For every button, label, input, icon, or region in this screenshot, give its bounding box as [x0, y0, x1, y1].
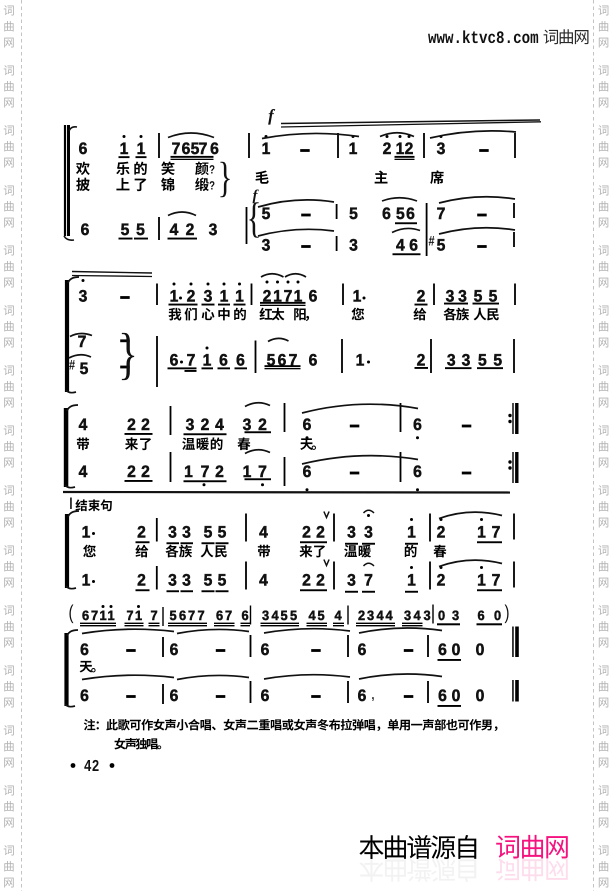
svg-text:3: 3	[347, 524, 356, 542]
svg-text:2: 2	[417, 288, 426, 306]
svg-text:3: 3	[364, 524, 373, 542]
svg-text:1: 1	[356, 352, 365, 370]
svg-text:1: 1	[349, 140, 358, 158]
svg-text:3: 3	[447, 352, 456, 370]
svg-text:0: 0	[476, 687, 485, 705]
svg-text:7: 7	[197, 608, 204, 623]
svg-text:3: 3	[182, 572, 191, 590]
svg-text:1: 1	[107, 608, 115, 623]
svg-text:6: 6	[82, 608, 90, 623]
svg-text:5: 5	[204, 572, 213, 590]
svg-text:6: 6	[303, 416, 312, 434]
svg-text:2: 2	[417, 352, 426, 370]
svg-text:0: 0	[438, 608, 445, 623]
svg-text:7: 7	[492, 572, 501, 590]
svg-text:2: 2	[383, 140, 392, 158]
svg-text:3: 3	[423, 608, 431, 623]
svg-text:0: 0	[452, 687, 461, 705]
svg-text:7: 7	[188, 608, 195, 623]
svg-text:6: 6	[216, 608, 224, 623]
svg-text:5: 5	[280, 608, 288, 623]
svg-text:2: 2	[316, 524, 325, 542]
svg-text:5: 5	[169, 608, 177, 623]
svg-text:3: 3	[168, 572, 177, 590]
svg-text:42: 42	[84, 758, 100, 775]
svg-text:4: 4	[308, 608, 316, 623]
svg-text:5: 5	[136, 221, 145, 239]
svg-text:2: 2	[302, 572, 311, 590]
svg-text:3: 3	[347, 572, 356, 590]
svg-text:(: (	[68, 602, 73, 624]
svg-text:3: 3	[182, 524, 191, 542]
svg-text:4: 4	[396, 237, 406, 255]
svg-text:5: 5	[478, 352, 487, 370]
svg-text:4: 4	[271, 608, 279, 623]
svg-text:4: 4	[413, 608, 421, 623]
svg-text:7: 7	[199, 140, 208, 158]
svg-text:3: 3	[186, 416, 195, 434]
svg-text:1: 1	[477, 572, 486, 590]
svg-text:3: 3	[404, 608, 412, 623]
svg-text:4: 4	[215, 416, 225, 434]
svg-text:2: 2	[186, 221, 195, 239]
svg-text:3: 3	[204, 288, 213, 306]
svg-text:2: 2	[137, 524, 146, 542]
svg-text:1: 1	[120, 140, 129, 158]
svg-text:?: ?	[209, 163, 215, 177]
svg-text:6: 6	[81, 221, 90, 239]
svg-text:6: 6	[303, 463, 312, 481]
svg-text:6: 6	[309, 288, 318, 306]
svg-text:2: 2	[201, 416, 210, 434]
svg-text:1: 1	[184, 463, 193, 481]
svg-text:5: 5	[262, 205, 271, 223]
svg-text:4: 4	[259, 572, 269, 590]
svg-text:3: 3	[349, 237, 358, 255]
svg-text:1: 1	[220, 288, 229, 306]
svg-text:3: 3	[462, 352, 471, 370]
svg-text:6: 6	[80, 687, 89, 705]
svg-text:4: 4	[170, 221, 180, 239]
svg-text:www.ktvc8.com: www.ktvc8.com	[428, 29, 539, 49]
svg-text:6: 6	[219, 352, 228, 370]
svg-text:1: 1	[477, 524, 486, 542]
svg-text:6: 6	[79, 140, 88, 158]
svg-text:2: 2	[137, 572, 146, 590]
svg-text:2: 2	[127, 463, 136, 481]
svg-text:7: 7	[91, 608, 98, 623]
svg-text:5: 5	[349, 205, 358, 223]
svg-text:4: 4	[376, 608, 384, 623]
svg-text:6: 6	[477, 608, 485, 623]
svg-text:1: 1	[407, 572, 416, 590]
svg-text:2: 2	[141, 416, 150, 434]
svg-text:4: 4	[334, 608, 342, 623]
svg-text:1: 1	[82, 572, 91, 590]
svg-text:3: 3	[452, 608, 460, 623]
svg-text:6: 6	[170, 352, 179, 370]
svg-text:2: 2	[437, 572, 446, 590]
svg-text:0: 0	[476, 641, 485, 659]
svg-text:6: 6	[170, 687, 179, 705]
svg-text:2: 2	[127, 416, 136, 434]
svg-text:#: #	[428, 233, 434, 249]
svg-text:6: 6	[241, 608, 249, 623]
svg-text:1: 1	[396, 140, 405, 158]
svg-text:7: 7	[172, 140, 181, 158]
svg-text:3: 3	[437, 140, 446, 158]
svg-text:2: 2	[215, 463, 224, 481]
svg-text:7: 7	[78, 333, 87, 351]
svg-text:7: 7	[437, 205, 446, 223]
svg-text:2: 2	[187, 288, 196, 306]
svg-text:): )	[504, 602, 509, 624]
svg-text:3: 3	[262, 237, 271, 255]
svg-text:6: 6	[261, 687, 270, 705]
svg-text:6: 6	[382, 205, 391, 223]
svg-text:#: #	[69, 357, 75, 373]
svg-text:2: 2	[358, 608, 365, 623]
svg-text:3: 3	[367, 608, 375, 623]
svg-text:3: 3	[209, 221, 218, 239]
svg-text:1: 1	[137, 140, 146, 158]
svg-text:6: 6	[170, 641, 179, 659]
svg-text:3: 3	[79, 288, 88, 306]
svg-text:3: 3	[262, 608, 270, 623]
svg-text:1: 1	[353, 288, 362, 306]
svg-text:4: 4	[79, 416, 89, 434]
svg-text:7: 7	[364, 572, 373, 590]
svg-text:5: 5	[218, 524, 227, 542]
svg-text:6: 6	[179, 608, 187, 623]
svg-text:6: 6	[236, 352, 245, 370]
svg-text:5: 5	[121, 221, 130, 239]
svg-text:6: 6	[182, 140, 191, 158]
svg-text:2: 2	[141, 463, 150, 481]
svg-text:?: ?	[209, 179, 215, 193]
svg-text:6: 6	[413, 416, 422, 434]
svg-text:1: 1	[170, 288, 179, 306]
svg-text:1: 1	[262, 140, 271, 158]
svg-text:7: 7	[150, 608, 157, 623]
svg-text:6: 6	[309, 352, 318, 370]
svg-text:1: 1	[407, 524, 416, 542]
svg-text:2: 2	[302, 524, 311, 542]
svg-text:5: 5	[290, 608, 298, 623]
svg-text:5: 5	[317, 608, 325, 623]
svg-text:6: 6	[358, 687, 367, 705]
svg-text:5: 5	[493, 352, 502, 370]
svg-text:6: 6	[438, 641, 447, 659]
svg-text:}: }	[118, 322, 138, 385]
svg-text:5: 5	[437, 237, 446, 255]
svg-text:5: 5	[204, 524, 213, 542]
svg-text:5: 5	[80, 360, 89, 378]
svg-text:6: 6	[438, 687, 447, 705]
svg-text:1: 1	[203, 352, 212, 370]
svg-text:6: 6	[409, 237, 418, 255]
svg-text:7: 7	[492, 524, 501, 542]
svg-text:6: 6	[358, 641, 367, 659]
svg-text:7: 7	[201, 463, 210, 481]
svg-text:4: 4	[79, 463, 89, 481]
svg-text:,: ,	[372, 687, 375, 702]
svg-text:7: 7	[126, 608, 133, 623]
svg-text:7: 7	[225, 608, 232, 623]
svg-text:3: 3	[168, 524, 177, 542]
svg-text:5: 5	[218, 572, 227, 590]
svg-text:4: 4	[259, 524, 269, 542]
svg-text:4: 4	[385, 608, 393, 623]
svg-text:}: }	[218, 155, 233, 202]
svg-text:2: 2	[316, 572, 325, 590]
svg-text:1: 1	[235, 288, 244, 306]
svg-text:2: 2	[405, 140, 414, 158]
svg-text:6: 6	[80, 641, 89, 659]
svg-text:6: 6	[413, 463, 422, 481]
svg-text:2: 2	[437, 524, 446, 542]
svg-text:7: 7	[187, 352, 196, 370]
svg-text:1: 1	[82, 524, 91, 542]
svg-text:1: 1	[99, 608, 107, 623]
svg-text:6: 6	[261, 641, 270, 659]
svg-text:0: 0	[452, 641, 461, 659]
svg-text:6: 6	[406, 205, 415, 223]
svg-text:0: 0	[494, 608, 501, 623]
svg-text:5: 5	[396, 205, 405, 223]
svg-text:1: 1	[135, 608, 143, 623]
